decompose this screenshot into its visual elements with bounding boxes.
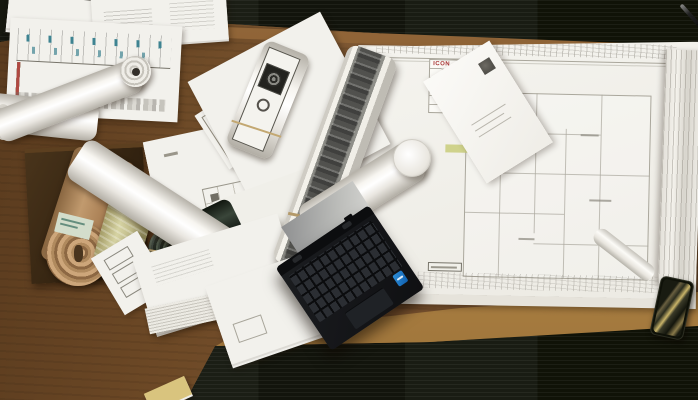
roll-end-cap: [393, 139, 431, 177]
plan-note-box: [428, 262, 462, 272]
roll-coil-end: [120, 56, 151, 87]
plan-label-text: [581, 134, 599, 136]
plan-label-text: [589, 199, 611, 201]
desk-scene: ICON: [0, 0, 698, 400]
curled-sheets-right: [658, 49, 698, 284]
stamp-mark: [478, 57, 496, 75]
plan-label-text: [518, 238, 534, 240]
printed-text: [151, 249, 214, 286]
printed-logo: [164, 151, 178, 157]
printed-diagram: [233, 314, 268, 343]
intel-sticker: [392, 270, 408, 287]
